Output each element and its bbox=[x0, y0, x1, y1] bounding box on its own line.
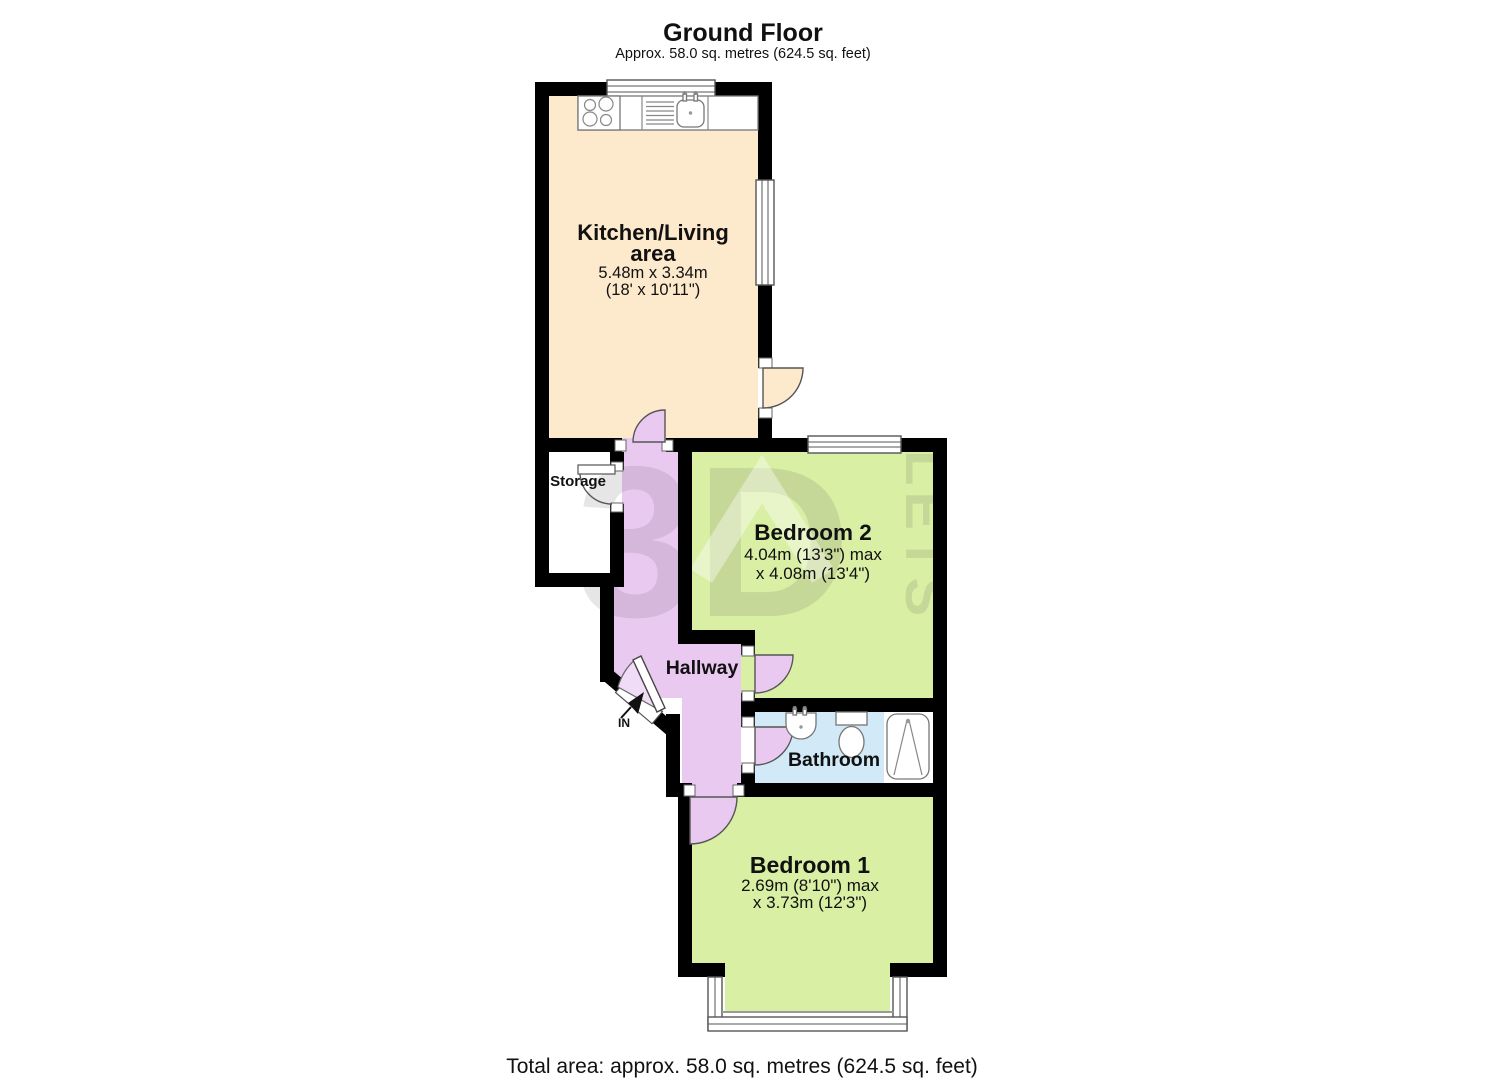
wall bbox=[758, 82, 772, 180]
wall bbox=[933, 438, 947, 977]
wall bbox=[741, 698, 947, 712]
floor-plan-svg: 3D LETS bbox=[0, 0, 1485, 1080]
wall bbox=[758, 285, 772, 368]
bedroom2-label: Bedroom 2 bbox=[754, 520, 872, 545]
wall bbox=[678, 438, 692, 644]
wall bbox=[600, 573, 614, 682]
jamb bbox=[742, 763, 754, 773]
wall bbox=[678, 963, 725, 977]
wall bbox=[535, 82, 549, 587]
jamb bbox=[742, 717, 754, 727]
kitchen-fixtures bbox=[578, 91, 758, 130]
wall bbox=[678, 630, 755, 644]
bay-window-floor bbox=[725, 963, 890, 1012]
kitchen-label-line2: area bbox=[630, 241, 676, 266]
storage-label: Storage bbox=[550, 473, 606, 490]
bedroom2-window bbox=[808, 436, 901, 453]
jamb bbox=[615, 440, 626, 451]
kitchen-top-window bbox=[607, 80, 715, 98]
page-subtitle: Approx. 58.0 sq. metres (624.5 sq. feet) bbox=[615, 46, 871, 62]
page-title: Ground Floor bbox=[663, 19, 823, 47]
bedroom2-dim2: x 4.08m (13'4") bbox=[756, 564, 870, 583]
jamb bbox=[742, 691, 754, 701]
shower-icon bbox=[887, 714, 929, 779]
jamb bbox=[733, 785, 744, 796]
watermark-lets-text: LETS bbox=[893, 450, 958, 622]
kitchen-dim-imperial: (18' x 10'11") bbox=[606, 281, 700, 299]
wall bbox=[890, 963, 947, 977]
wall bbox=[737, 783, 947, 797]
floor-plan-page: 3D LETS bbox=[0, 0, 1485, 1080]
bedroom1-dim2: x 3.73m (12'3") bbox=[753, 893, 867, 912]
jamb bbox=[684, 785, 695, 796]
wall bbox=[535, 438, 622, 452]
stove-icon bbox=[578, 96, 620, 130]
kitchen-dim-metric: 5.48m x 3.34m bbox=[598, 264, 707, 282]
entrance-in-label: IN bbox=[618, 716, 630, 730]
jamb bbox=[759, 358, 772, 368]
bedroom2-dim1: 4.04m (13'3") max bbox=[744, 545, 882, 564]
hallway-label: Hallway bbox=[666, 657, 739, 679]
jamb bbox=[759, 408, 772, 418]
wall bbox=[666, 714, 680, 797]
total-area-label: Total area: approx. 58.0 sq. metres (624… bbox=[506, 1055, 978, 1078]
kitchen-exterior-door-swing bbox=[763, 368, 803, 408]
jamb bbox=[611, 503, 623, 512]
jamb bbox=[742, 646, 754, 656]
bedroom1-label: Bedroom 1 bbox=[750, 852, 870, 878]
kitchen-side-window bbox=[756, 180, 774, 285]
bathroom-label: Bathroom bbox=[788, 749, 880, 771]
